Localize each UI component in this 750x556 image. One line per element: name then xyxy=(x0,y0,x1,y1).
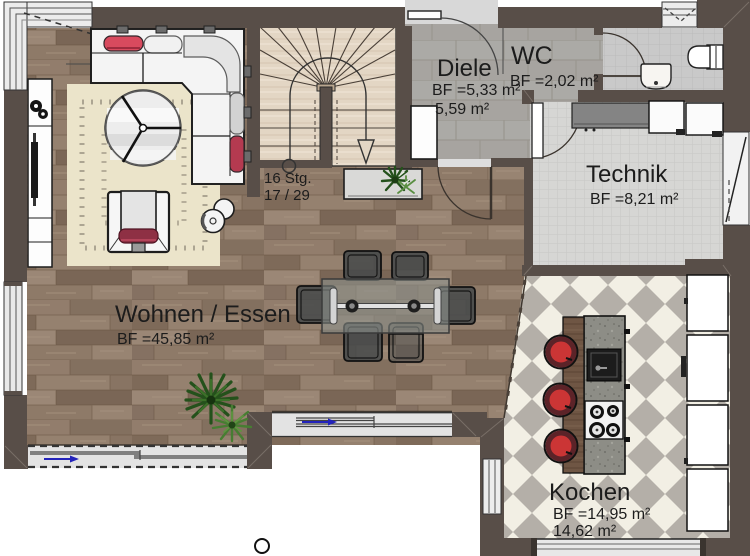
svg-text:BF =2,02 m²: BF =2,02 m² xyxy=(510,73,599,90)
svg-text:Wohnen / Essen: Wohnen / Essen xyxy=(115,301,291,328)
svg-text:Technik: Technik xyxy=(586,161,668,188)
svg-text:5,59 m²: 5,59 m² xyxy=(435,101,490,118)
svg-text:BF =45,85 m²: BF =45,85 m² xyxy=(117,331,215,348)
svg-text:14,62 m²: 14,62 m² xyxy=(553,523,617,540)
svg-text:17 / 29: 17 / 29 xyxy=(264,187,310,204)
svg-text:BF =8,21 m²: BF =8,21 m² xyxy=(590,191,679,208)
svg-text:BF =5,33 m²: BF =5,33 m² xyxy=(432,82,521,99)
svg-text:Kochen: Kochen xyxy=(549,479,630,506)
svg-text:16 Stg.: 16 Stg. xyxy=(264,170,312,187)
svg-text:WC: WC xyxy=(511,42,553,70)
svg-text:Diele: Diele xyxy=(437,55,492,82)
svg-text:BF =14,95 m²: BF =14,95 m² xyxy=(553,506,651,523)
